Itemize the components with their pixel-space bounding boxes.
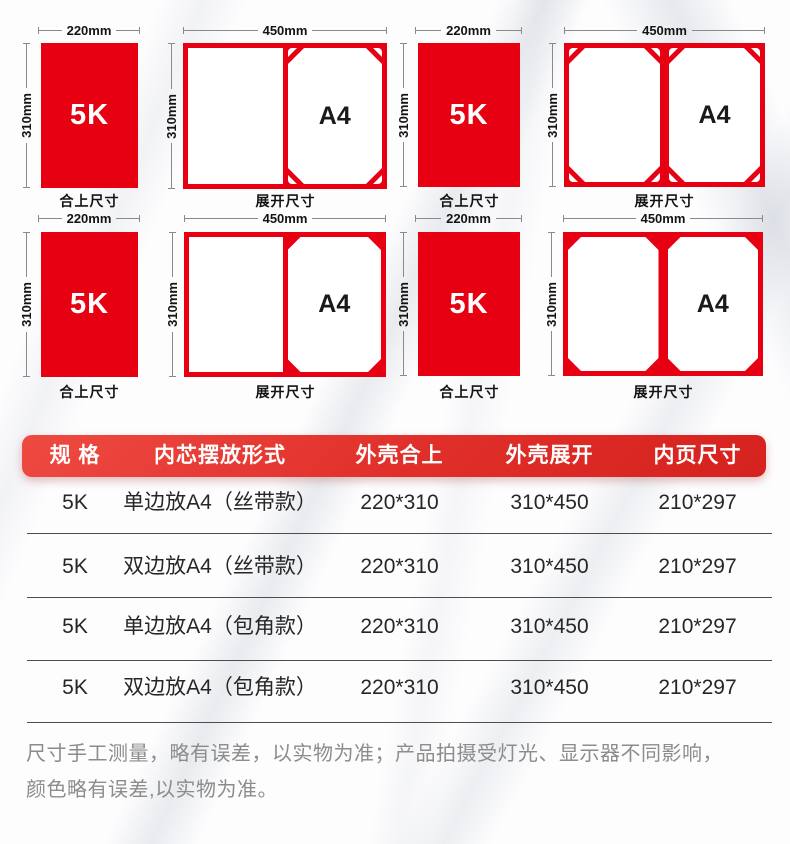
- ribbon-corner-icon: [569, 165, 586, 182]
- ribbon-corner-icon: [643, 165, 660, 182]
- dimension-label: 310mm: [164, 89, 179, 144]
- closed-width-dimension: 220mm: [38, 211, 140, 225]
- closed-height-dimension: 310mm: [18, 232, 34, 377]
- open-height-dimension: 310mm: [164, 232, 180, 377]
- open-cover-frame: A4: [183, 43, 387, 189]
- closed-caption: 合上尺寸: [419, 385, 520, 399]
- table-cell-core-layout: 单边放A4（包角款）: [100, 612, 340, 642]
- table-row-divider: [27, 660, 772, 661]
- dimension-line: [403, 331, 404, 376]
- closed-cover-diagram: 5K: [418, 43, 520, 187]
- dimension-line: [496, 30, 522, 31]
- table-cell-core-layout: 单边放A4（丝带款）: [100, 488, 340, 518]
- table-row-divider: [27, 533, 772, 534]
- table-cell-shell-closed: 220*310: [342, 673, 457, 703]
- dimension-label: 220mm: [441, 211, 496, 226]
- dimension-line: [552, 142, 553, 187]
- panel-left: [569, 48, 660, 182]
- column-header-core-layout: 内芯摆放形式: [100, 445, 340, 467]
- table-cell-shell-closed: 220*310: [342, 488, 457, 518]
- table-row-divider: [27, 722, 772, 723]
- dimension-line: [692, 30, 765, 31]
- dimension-label: 310mm: [396, 277, 411, 332]
- closed-cover-diagram: 5K: [41, 43, 138, 188]
- dimension-line: [184, 218, 258, 219]
- table-cell-inner-page: 210*297: [640, 552, 755, 582]
- dimension-line: [551, 232, 552, 277]
- table-cell-inner-page: 210*297: [640, 673, 755, 703]
- dimension-label: 310mm: [19, 277, 34, 332]
- dimension-line: [312, 30, 387, 31]
- dimension-line: [26, 232, 27, 277]
- closed-caption: 合上尺寸: [39, 385, 140, 399]
- dimension-line: [26, 143, 27, 188]
- table-cell-core-layout: 双边放A4（丝带款）: [100, 552, 340, 582]
- table-row-divider: [27, 597, 772, 598]
- dimension-line: [312, 218, 386, 219]
- dimension-line: [172, 232, 173, 277]
- dimension-line: [38, 218, 62, 219]
- open-cover-frame: A4: [563, 232, 763, 376]
- panel-right: A4: [288, 48, 383, 184]
- dimension-line: [563, 218, 636, 219]
- panel-left: [189, 237, 283, 372]
- table-cell-shell-open: 310*450: [492, 488, 607, 518]
- dimension-label: 310mm: [396, 88, 411, 143]
- open-height-dimension: 310mm: [543, 232, 559, 376]
- open-caption: 展开尺寸: [614, 194, 715, 208]
- closed-size-text: 5K: [449, 99, 488, 132]
- closed-height-dimension: 310mm: [18, 43, 34, 188]
- dimension-line: [26, 43, 27, 88]
- closed-size-text: 5K: [70, 288, 109, 321]
- ribbon-corner-icon: [569, 48, 586, 65]
- dimension-line: [415, 218, 441, 219]
- panel-right: A4: [668, 237, 759, 371]
- column-header-inner-page: 内页尺寸: [640, 445, 755, 467]
- panel-left: [188, 48, 283, 184]
- dimension-line: [26, 332, 27, 377]
- dimension-label: 220mm: [441, 23, 496, 38]
- dimension-line: [564, 30, 637, 31]
- dimension-label: 220mm: [62, 23, 117, 38]
- closed-caption: 合上尺寸: [39, 194, 140, 208]
- dimension-line: [496, 218, 522, 219]
- dimension-label: 450mm: [258, 211, 313, 226]
- dimension-label: 450mm: [636, 211, 691, 226]
- dimension-line: [403, 232, 404, 277]
- product-size-infographic: 220mm 310mm 5K 合上尺寸 450mm 310mm A4 展开尺寸 …: [0, 0, 790, 844]
- dimension-line: [690, 218, 763, 219]
- dimension-label: 310mm: [165, 277, 180, 332]
- dimension-label: 310mm: [545, 88, 560, 143]
- panel-left: [568, 237, 659, 371]
- dimension-line: [552, 43, 553, 88]
- dimension-label: 450mm: [637, 23, 692, 38]
- dimension-line: [415, 30, 441, 31]
- table-cell-shell-closed: 220*310: [342, 612, 457, 642]
- dimension-line: [172, 332, 173, 377]
- table-cell-shell-closed: 220*310: [342, 552, 457, 582]
- table-cell-inner-page: 210*297: [640, 488, 755, 518]
- inner-page-text: A4: [668, 237, 759, 371]
- closed-width-dimension: 220mm: [415, 23, 522, 37]
- column-header-shell-closed: 外壳合上: [342, 445, 457, 467]
- dimension-line: [116, 30, 140, 31]
- ribbon-corner-icon: [643, 48, 660, 65]
- open-height-dimension: 310mm: [163, 43, 179, 189]
- closed-size-text: 5K: [70, 99, 109, 132]
- dimension-line: [38, 30, 62, 31]
- panel-right: A4: [669, 48, 760, 182]
- closed-cover-diagram: 5K: [41, 232, 138, 377]
- panel-right: A4: [288, 237, 382, 372]
- dimension-label: 450mm: [258, 23, 313, 38]
- open-width-dimension: 450mm: [564, 23, 765, 37]
- open-width-dimension: 450mm: [184, 211, 386, 225]
- dimension-label: 310mm: [19, 88, 34, 143]
- inner-page-text: A4: [669, 48, 760, 182]
- table-cell-shell-open: 310*450: [492, 673, 607, 703]
- dimension-line: [171, 43, 172, 89]
- dimension-label: 310mm: [544, 277, 559, 332]
- closed-width-dimension: 220mm: [38, 23, 140, 37]
- closed-height-dimension: 310mm: [395, 232, 411, 376]
- closed-height-dimension: 310mm: [395, 43, 411, 187]
- dimension-line: [183, 30, 258, 31]
- closed-width-dimension: 220mm: [415, 211, 522, 225]
- inner-page-text: A4: [288, 48, 383, 184]
- open-cover-frame: A4: [564, 43, 765, 187]
- open-caption: 展开尺寸: [235, 385, 336, 399]
- open-width-dimension: 450mm: [183, 23, 387, 37]
- dimension-line: [171, 143, 172, 189]
- column-header-shell-open: 外壳展开: [492, 445, 607, 467]
- open-height-dimension: 310mm: [544, 43, 560, 187]
- closed-caption: 合上尺寸: [419, 194, 520, 208]
- dimension-line: [116, 218, 140, 219]
- table-cell-shell-open: 310*450: [492, 552, 607, 582]
- table-cell-core-layout: 双边放A4（包角款）: [100, 673, 340, 703]
- closed-size-text: 5K: [449, 288, 488, 321]
- open-width-dimension: 450mm: [563, 211, 763, 225]
- dimension-label: 220mm: [62, 211, 117, 226]
- dimension-line: [551, 331, 552, 376]
- inner-page-text: A4: [288, 237, 382, 372]
- closed-cover-diagram: 5K: [418, 232, 520, 376]
- disclaimer-line-2: 颜色略有误差,以实物为准。: [26, 773, 776, 802]
- open-cover-frame: A4: [184, 232, 386, 377]
- open-caption: 展开尺寸: [235, 194, 336, 208]
- dimension-line: [403, 142, 404, 187]
- table-cell-shell-open: 310*450: [492, 612, 607, 642]
- table-cell-inner-page: 210*297: [640, 612, 755, 642]
- open-caption: 展开尺寸: [613, 385, 714, 399]
- disclaimer-line-1: 尺寸手工测量，略有误差，以实物为准；产品拍摄受灯光、显示器不同影响，: [26, 737, 776, 766]
- dimension-line: [403, 43, 404, 88]
